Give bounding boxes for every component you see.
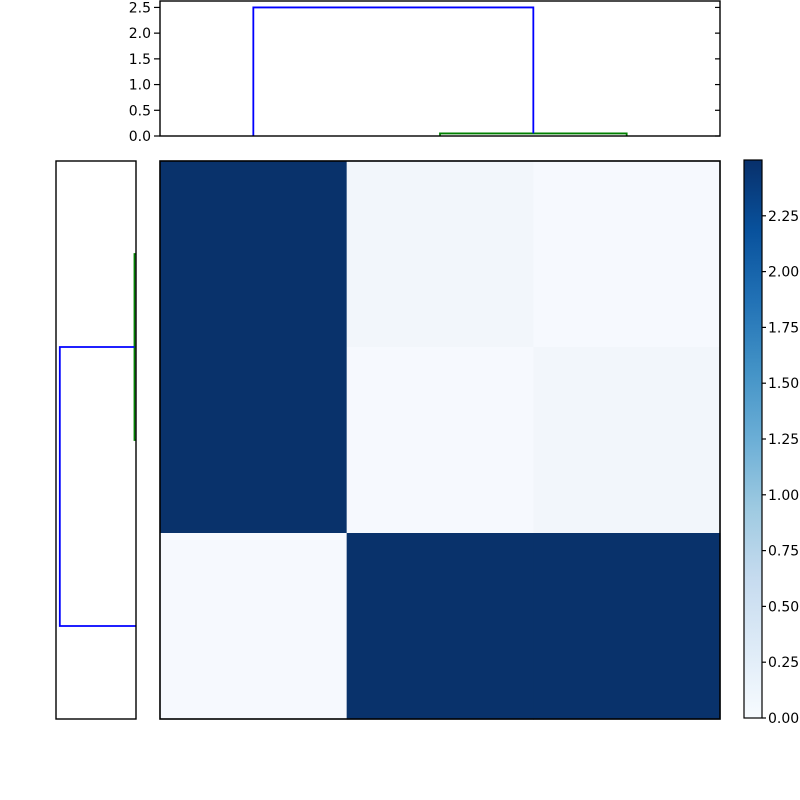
colorbar-tick-label: 1.25 — [768, 432, 799, 448]
top-axis-tick-label: 2.5 — [129, 0, 151, 16]
heatmap-cell-r1c2 — [533, 347, 720, 534]
colorbar-tick-label: 0.00 — [768, 711, 799, 727]
heatmap-cell-r0c2 — [533, 161, 720, 348]
top-axis-tick-label: 1.5 — [129, 52, 151, 68]
top-axis-tick-label: 1.0 — [129, 78, 151, 94]
clustermap-figure: 0.00.51.01.52.02.50.000.250.500.751.001.… — [0, 0, 800, 800]
colorbar-tick-label: 0.25 — [768, 655, 799, 671]
colorbar-tick-label: 0.50 — [768, 599, 799, 615]
left-dendrogram-border — [56, 161, 136, 719]
heatmap-cell-r1c1 — [347, 347, 534, 534]
heatmap-cell-r1c0 — [160, 347, 347, 534]
top-axis-tick-label: 2.0 — [129, 26, 151, 42]
top-dendrogram-border — [160, 1, 720, 136]
colorbar-bar — [744, 160, 762, 718]
colorbar-tick-label: 1.50 — [768, 376, 799, 392]
heatmap-cell-r2c1 — [347, 533, 534, 720]
heatmap-cell-r2c0 — [160, 533, 347, 720]
colorbar-tick-label: 1.75 — [768, 320, 799, 336]
figure-canvas: 0.00.51.01.52.02.50.000.250.500.751.001.… — [0, 0, 800, 800]
heatmap-cell-r2c2 — [533, 533, 720, 720]
top-axis-tick-label: 0.0 — [129, 129, 151, 145]
colorbar-tick-label: 2.25 — [768, 209, 799, 225]
heatmap-cell-r0c0 — [160, 161, 347, 348]
colorbar-tick-label: 2.00 — [768, 265, 799, 281]
colorbar-tick-label: 0.75 — [768, 544, 799, 560]
top-dendrogram-link-blue — [253, 7, 533, 136]
heatmap-cell-r0c1 — [347, 161, 534, 348]
left-dendrogram-link-blue — [60, 347, 136, 626]
colorbar-tick-label: 1.00 — [768, 488, 799, 504]
top-axis-tick-label: 0.5 — [129, 103, 151, 119]
